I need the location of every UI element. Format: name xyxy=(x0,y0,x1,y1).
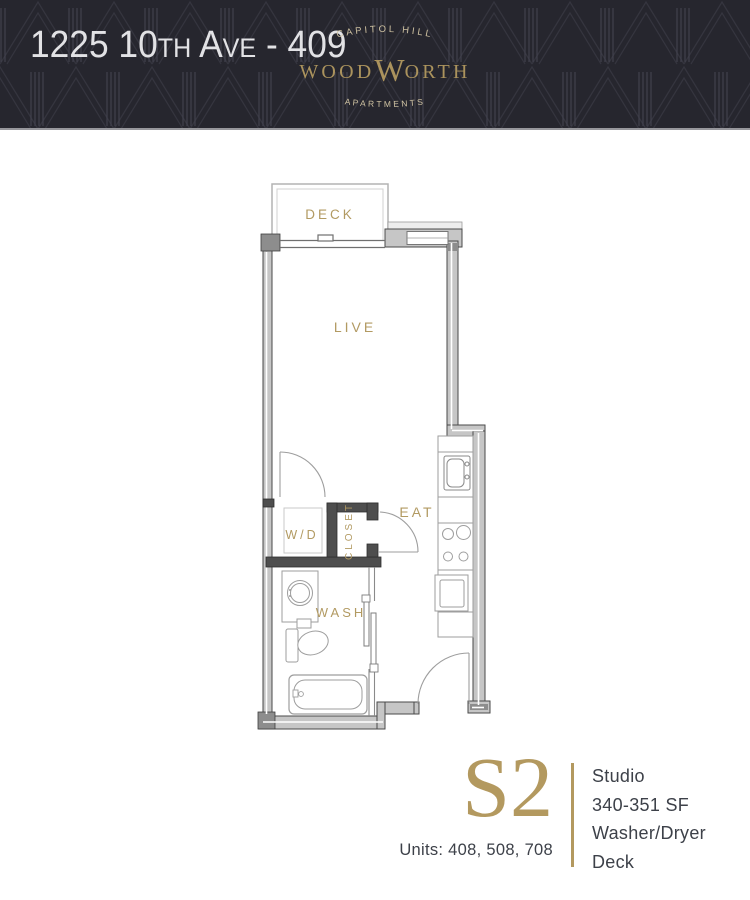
logo-brand-w: W xyxy=(374,52,405,88)
plan-code: S2 xyxy=(393,741,553,833)
wd-door xyxy=(280,452,325,497)
page: { "header": { "unit_title": "1225 10th A… xyxy=(0,0,750,900)
woodworth-logo: CAPITOL HILL WOODWORTH APARTMENTS xyxy=(293,6,477,124)
room-label-wash: WASH xyxy=(316,605,367,620)
room-label-wd: W/D xyxy=(285,528,318,542)
svg-text:APARTMENTS: APARTMENTS xyxy=(344,96,426,109)
toilet-icon xyxy=(286,627,331,662)
logo-location-text: CAPITOL HILL xyxy=(336,24,435,41)
feature-item: Washer/Dryer xyxy=(592,819,706,848)
kitchen-sink-icon xyxy=(435,575,468,611)
svg-text:WOODWORTH: WOODWORTH xyxy=(299,52,470,88)
units-list: Units: 408, 508, 708 xyxy=(385,841,553,860)
logo-type-text: APARTMENTS xyxy=(344,96,426,109)
feature-item: Deck xyxy=(592,848,706,877)
deck-sliding-door xyxy=(280,235,385,248)
info-divider xyxy=(571,763,574,867)
entry-door xyxy=(418,653,469,704)
window xyxy=(407,232,448,245)
svg-text:CAPITOL HILL: CAPITOL HILL xyxy=(336,24,435,41)
feature-item: Studio xyxy=(592,762,706,791)
fridge-icon xyxy=(444,456,470,490)
room-label-eat: EAT xyxy=(399,504,434,520)
vanity-sink-icon xyxy=(282,571,318,628)
floorplan-drawing: DECK LIVE EAT W/D CLOSET WASH xyxy=(0,148,750,773)
header-banner: 1225 10th Ave - 409 CAPITOL HILL WOODWOR… xyxy=(0,0,750,130)
bathtub-icon xyxy=(289,675,367,714)
feature-list: Studio 340-351 SF Washer/Dryer Deck xyxy=(592,762,706,876)
logo-brand-pre: WOOD xyxy=(299,61,374,83)
feature-item: 340-351 SF xyxy=(592,791,706,820)
logo-brand-post: ORTH xyxy=(405,61,471,83)
room-label-live: LIVE xyxy=(334,319,376,335)
room-label-closet: CLOSET xyxy=(344,502,355,560)
room-label-deck: DECK xyxy=(305,207,355,222)
